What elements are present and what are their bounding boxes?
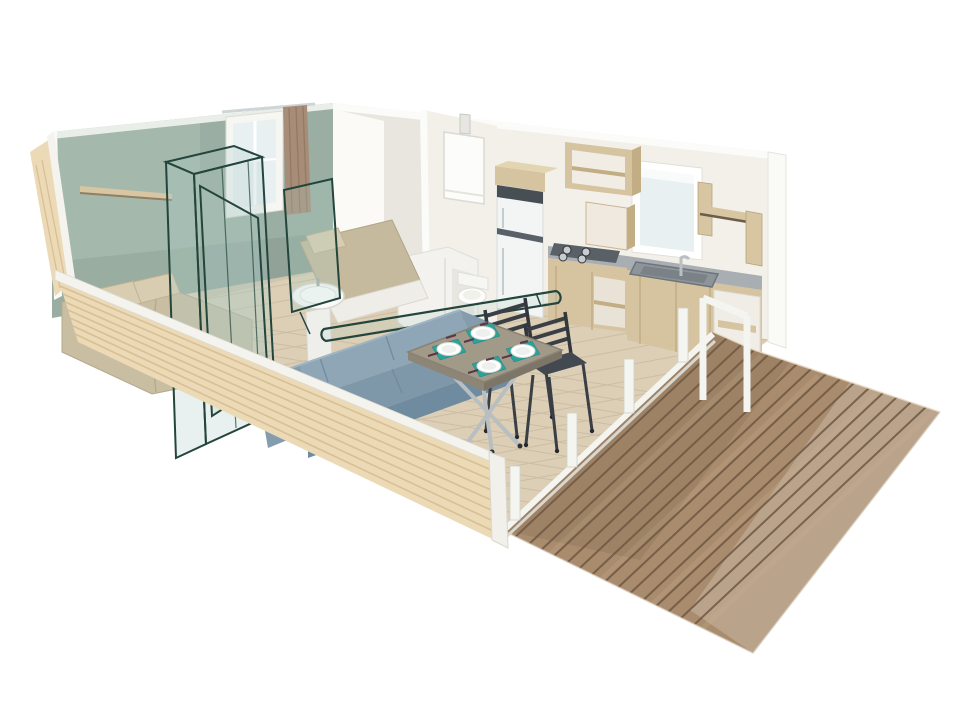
wall-cut-right-edge: [768, 152, 786, 348]
plate: [511, 345, 535, 358]
railing-post: [510, 466, 520, 520]
front-wall-end-post: [489, 452, 508, 548]
railing-post: [567, 413, 577, 467]
splashback-niche: [586, 202, 635, 250]
plate: [471, 327, 495, 340]
render-canvas: [0, 0, 960, 720]
plate: [477, 360, 501, 373]
mobile-home-3d-render: [0, 0, 960, 720]
railing-post: [624, 359, 634, 413]
overhead-open-cabinet: [565, 142, 641, 196]
plate: [437, 343, 461, 356]
kitchen-window: [632, 160, 702, 260]
railing-post: [678, 308, 688, 362]
